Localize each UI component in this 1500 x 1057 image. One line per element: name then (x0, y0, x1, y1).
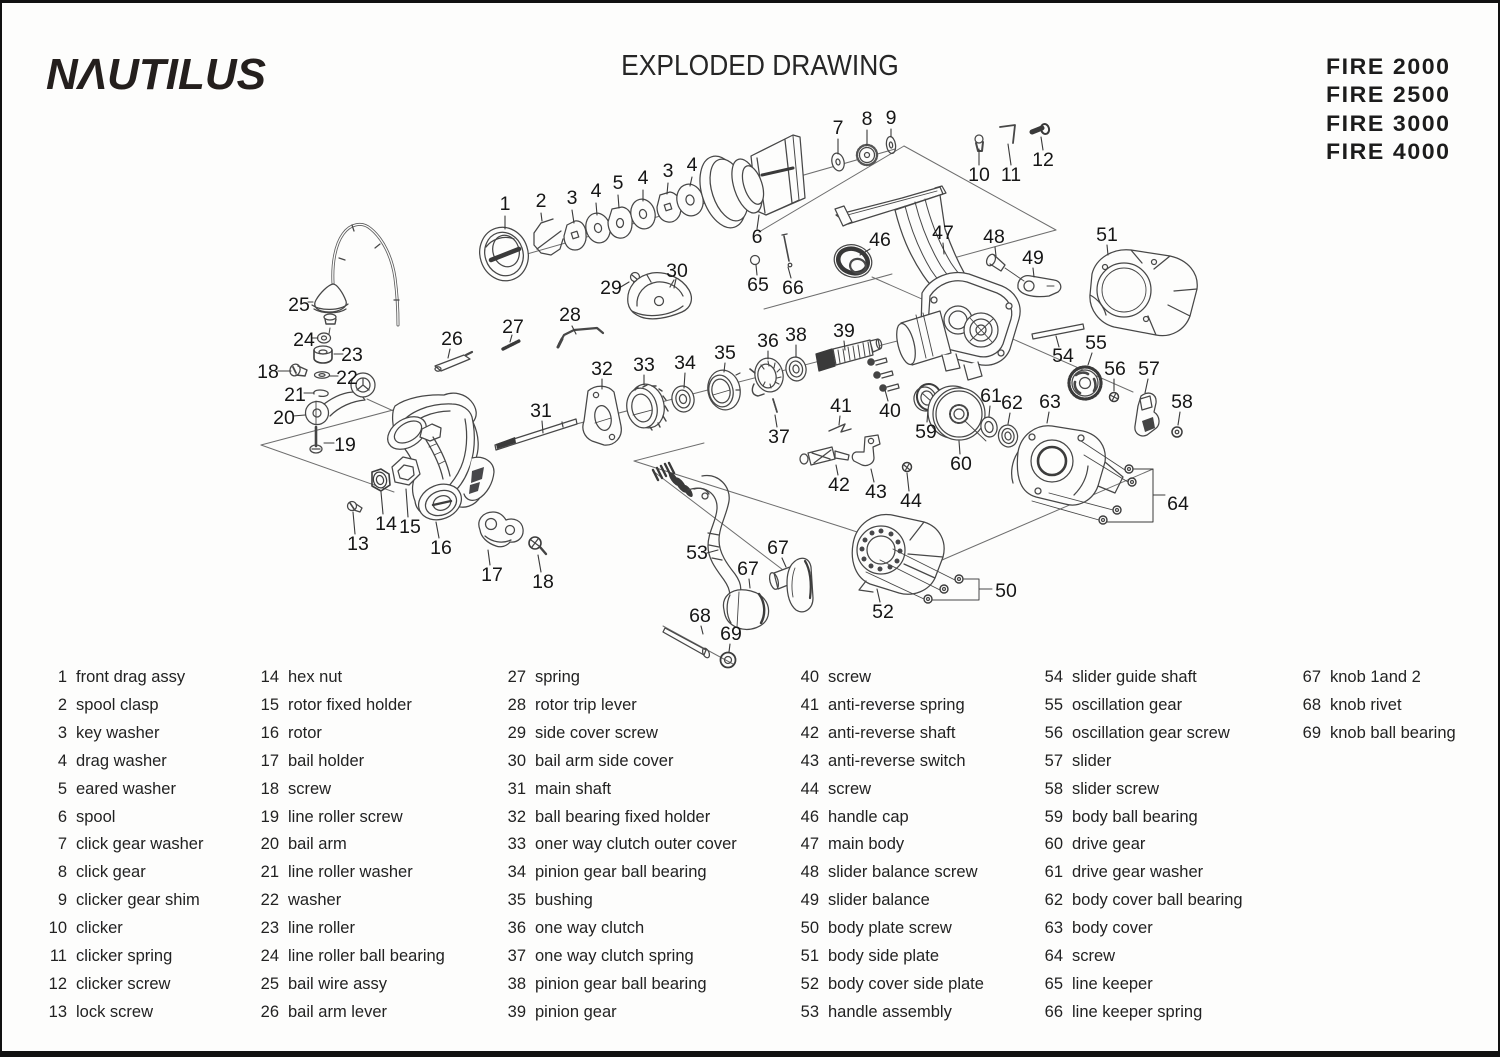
svg-text:69: 69 (720, 623, 742, 645)
svg-text:55: 55 (1085, 332, 1107, 354)
svg-text:4: 4 (687, 154, 698, 176)
svg-text:42: 42 (828, 474, 850, 496)
svg-text:5: 5 (613, 172, 624, 194)
svg-text:54: 54 (1052, 345, 1074, 367)
svg-text:40: 40 (879, 400, 901, 422)
svg-text:29: 29 (600, 277, 622, 299)
svg-text:44: 44 (900, 490, 922, 512)
svg-text:66: 66 (782, 277, 804, 299)
svg-text:61: 61 (980, 385, 1002, 407)
svg-text:46: 46 (869, 229, 891, 251)
svg-text:4: 4 (638, 167, 649, 189)
svg-text:19: 19 (334, 434, 356, 456)
svg-text:23: 23 (341, 344, 363, 366)
svg-text:58: 58 (1171, 391, 1193, 413)
svg-text:13: 13 (347, 533, 369, 555)
svg-text:62: 62 (1001, 392, 1023, 414)
svg-text:64: 64 (1167, 493, 1189, 515)
svg-text:1: 1 (500, 193, 511, 215)
svg-text:28: 28 (559, 304, 581, 326)
svg-text:68: 68 (689, 605, 711, 627)
svg-text:10: 10 (968, 164, 990, 186)
svg-text:4: 4 (591, 180, 602, 202)
svg-text:56: 56 (1104, 358, 1126, 380)
svg-text:34: 34 (674, 352, 696, 374)
svg-text:31: 31 (530, 400, 552, 422)
svg-text:51: 51 (1096, 224, 1118, 246)
svg-text:16: 16 (430, 537, 452, 559)
svg-text:32: 32 (591, 358, 613, 380)
svg-text:33: 33 (633, 354, 655, 376)
svg-text:67: 67 (767, 537, 789, 559)
svg-text:3: 3 (567, 187, 578, 209)
svg-text:47: 47 (932, 222, 954, 244)
svg-text:27: 27 (502, 316, 524, 338)
svg-text:67: 67 (737, 558, 759, 580)
svg-text:12: 12 (1032, 149, 1054, 171)
svg-text:59: 59 (915, 421, 937, 443)
svg-text:2: 2 (536, 190, 547, 212)
svg-text:18: 18 (532, 571, 554, 593)
svg-text:35: 35 (714, 342, 736, 364)
svg-text:60: 60 (950, 453, 972, 475)
svg-text:9: 9 (886, 107, 897, 129)
svg-text:21: 21 (284, 384, 306, 406)
svg-text:38: 38 (785, 324, 807, 346)
svg-text:14: 14 (375, 513, 397, 535)
svg-text:11: 11 (1001, 164, 1021, 186)
svg-text:22: 22 (336, 367, 358, 389)
svg-text:50: 50 (995, 580, 1017, 602)
svg-text:63: 63 (1039, 391, 1061, 413)
svg-text:52: 52 (872, 601, 894, 623)
svg-text:8: 8 (862, 108, 873, 130)
svg-text:15: 15 (399, 516, 421, 538)
svg-text:65: 65 (747, 274, 769, 296)
svg-text:6: 6 (752, 226, 763, 248)
svg-text:7: 7 (833, 117, 844, 139)
svg-text:49: 49 (1022, 247, 1044, 269)
svg-text:36: 36 (757, 330, 779, 352)
svg-text:41: 41 (830, 395, 852, 417)
svg-text:43: 43 (865, 481, 887, 503)
svg-text:17: 17 (481, 564, 503, 586)
svg-text:24: 24 (293, 329, 315, 351)
svg-text:57: 57 (1138, 358, 1160, 380)
svg-text:25: 25 (288, 294, 310, 316)
svg-text:20: 20 (273, 407, 295, 429)
svg-text:3: 3 (663, 160, 674, 182)
svg-text:30: 30 (666, 260, 688, 282)
svg-text:26: 26 (441, 328, 463, 350)
svg-text:37: 37 (768, 426, 790, 448)
svg-text:53: 53 (686, 542, 708, 564)
svg-text:39: 39 (833, 320, 855, 342)
svg-text:18: 18 (257, 361, 279, 383)
svg-text:48: 48 (983, 226, 1005, 248)
